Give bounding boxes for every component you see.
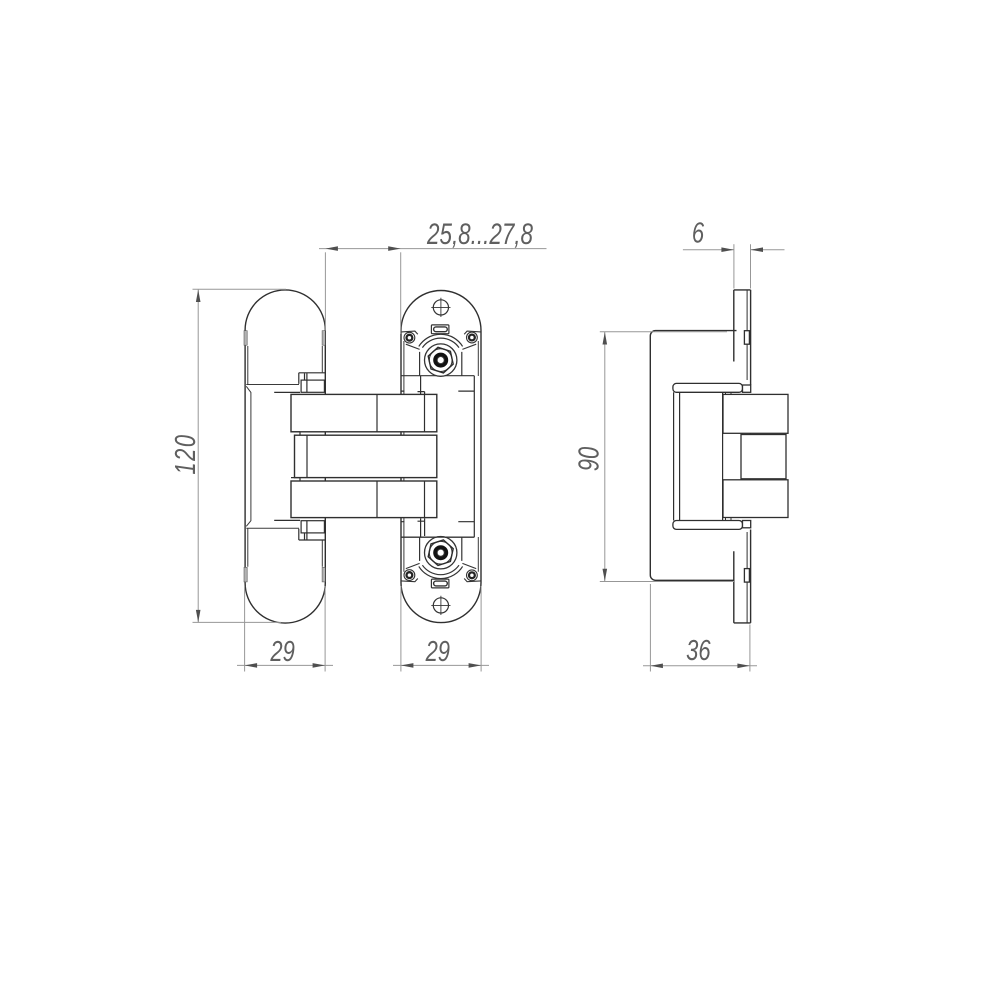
svg-text:29: 29 [270,636,295,667]
svg-text:36: 36 [686,635,711,666]
svg-text:90: 90 [574,446,605,471]
svg-text:29: 29 [425,636,450,667]
svg-text:25,8...27,8: 25,8...27,8 [426,217,533,251]
svg-text:6: 6 [692,218,705,249]
svg-text:120: 120 [170,433,201,474]
